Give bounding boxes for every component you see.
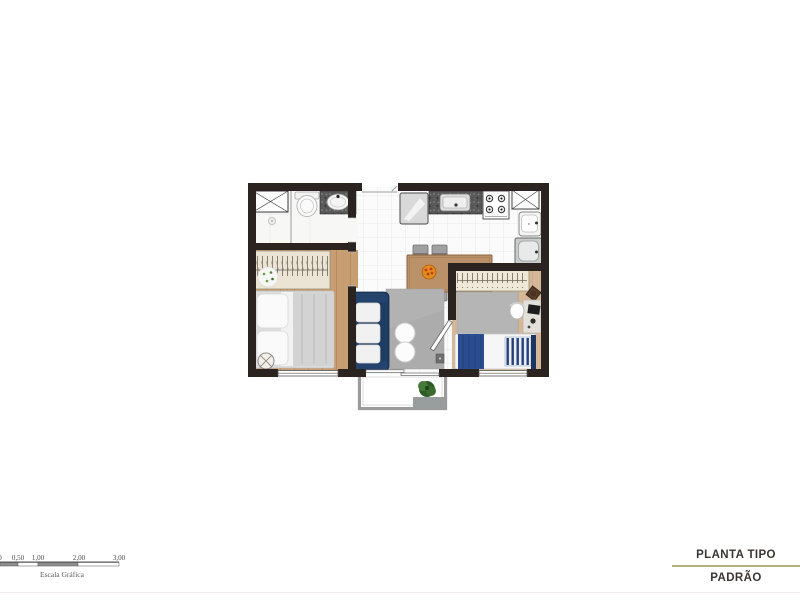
pillow-icon — [257, 294, 288, 328]
scale-tick-label: 0 — [0, 554, 2, 562]
stove-icon — [483, 191, 509, 219]
blue-blanket — [458, 334, 484, 369]
shower-drain-icon — [269, 218, 276, 225]
living-area — [350, 289, 444, 371]
balcony-rail-right — [444, 375, 447, 410]
bedroom2-rug — [457, 292, 518, 337]
bottom-rule — [0, 592, 800, 593]
desk — [523, 300, 541, 333]
kitchen-counter — [429, 191, 482, 214]
title-block: PLANTA TIPO — [672, 549, 800, 561]
single-bed — [455, 334, 536, 369]
wardrobe — [455, 270, 529, 291]
bedroom1 — [252, 251, 334, 369]
scale-tick-label: 3,00 — [113, 554, 125, 562]
pouf-table-icon — [395, 342, 415, 362]
scale-tick-label: 0,50 — [12, 554, 24, 562]
striped-pillow-icon — [505, 337, 531, 366]
fruit-bowl-icon — [422, 265, 436, 279]
pouf-table-icon — [395, 323, 415, 343]
overhead-cabinet-icon — [512, 190, 539, 209]
round-rug-icon — [258, 267, 278, 287]
title-divider — [672, 565, 800, 567]
window-icon — [278, 371, 338, 377]
monitor-icon — [527, 304, 540, 315]
scale-tick-label: 1,00 — [32, 554, 44, 562]
faucet-icon — [454, 203, 457, 206]
laundry-tank-icon — [515, 238, 542, 264]
balcony-rail-left — [358, 375, 361, 410]
scale-tick-label: 2,00 — [73, 554, 85, 562]
service-sink-icon — [519, 212, 541, 236]
faucet-icon — [336, 195, 339, 198]
headboard — [531, 335, 536, 369]
desk-chair-icon — [510, 303, 524, 319]
ceiling-fan-symbol-icon — [258, 353, 274, 369]
window-icon — [479, 371, 527, 377]
balcony-mat — [413, 397, 444, 408]
plan-title: PLANTA TIPO — [672, 549, 800, 561]
floor-plan — [0, 0, 800, 600]
speaker-icon — [436, 354, 444, 363]
scale-bar-caption: Escala Gráfica — [40, 570, 84, 579]
balcony — [358, 373, 447, 410]
plan-subtitle: PADRÃO — [672, 572, 800, 584]
scale-bar — [0, 562, 119, 566]
fridge-icon — [400, 193, 428, 224]
